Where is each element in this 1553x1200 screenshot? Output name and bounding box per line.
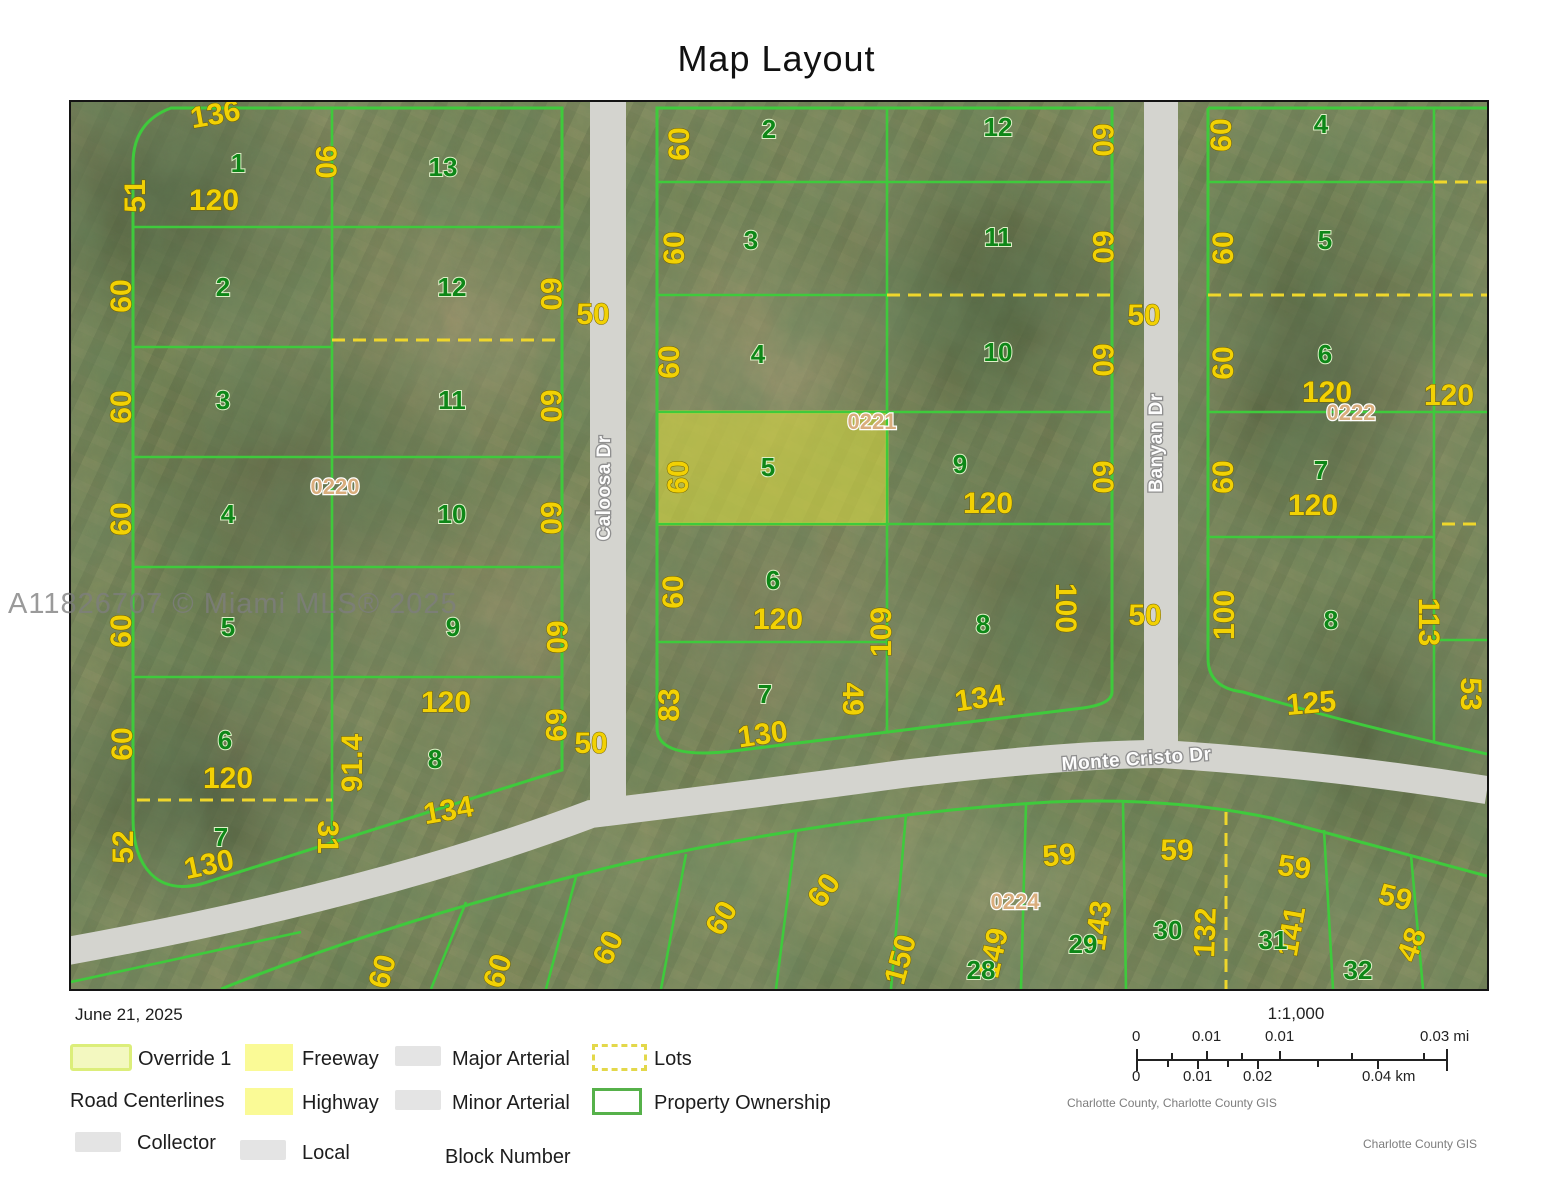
freeway-swatch — [245, 1044, 293, 1071]
dimension-label: 59 — [1041, 838, 1077, 874]
dimension-label: 60 — [1086, 123, 1119, 156]
dimension-label: 83 — [653, 688, 686, 721]
lot-number: 6 — [1318, 339, 1332, 369]
dimension-label: 91.4 — [336, 733, 369, 792]
major-arterial-swatch — [395, 1046, 441, 1066]
dimension-label: 60 — [540, 620, 573, 653]
dimension-label: 60 — [662, 460, 695, 493]
lot-number: 10 — [438, 499, 467, 529]
local-swatch — [240, 1140, 286, 1160]
aerial-texture — [71, 102, 1487, 989]
scale-km-0: 0 — [1132, 1068, 1140, 1085]
lot-number: 8 — [1324, 605, 1338, 635]
dimension-label: 125 — [1285, 685, 1338, 722]
dimension-label: 60 — [105, 279, 138, 312]
collector-swatch — [75, 1132, 121, 1152]
scale-mi-0: 0 — [1132, 1028, 1140, 1045]
legend-override-label: Override 1 — [138, 1048, 231, 1071]
dimension-label: 60 — [653, 345, 686, 378]
map-canvas: 1365112090606060606060606060120521303191… — [69, 100, 1489, 991]
road-width-label: 50 — [1127, 299, 1160, 332]
dimension-label: 60 — [1086, 343, 1119, 376]
dimension-label: 90 — [309, 145, 342, 178]
legend-collector-label: Collector — [137, 1132, 216, 1155]
dimension-label: 53 — [1454, 677, 1487, 710]
dimension-label: 60 — [657, 575, 690, 608]
dimension-label: 60 — [105, 390, 138, 423]
lot-number: 2 — [216, 272, 230, 302]
lot-number: 29 — [1069, 929, 1098, 959]
road-width-label: 50 — [574, 727, 607, 760]
dimension-label: 60 — [1086, 230, 1119, 263]
lot-number: 10 — [984, 337, 1013, 367]
scale-km-2: 0.02 — [1243, 1068, 1272, 1085]
map-date: June 21, 2025 — [75, 1005, 183, 1025]
dimension-label: 100 — [1049, 583, 1082, 633]
dimension-label: 60 — [1207, 460, 1240, 493]
dimension-label: 49 — [836, 682, 869, 715]
lot-number: 3 — [216, 385, 230, 415]
dimension-label: 120 — [753, 603, 803, 636]
lot-number: 8 — [428, 744, 442, 774]
dimension-label: 60 — [663, 127, 696, 160]
scale-mi-3: 0.03 mi — [1420, 1028, 1469, 1045]
lot-number: 9 — [953, 449, 967, 479]
attribution-line: Charlotte County, Charlotte County GIS — [1067, 1096, 1277, 1110]
lot-number: 1 — [231, 148, 245, 178]
dimension-label: 60 — [1086, 460, 1119, 493]
dimension-label: 60 — [106, 727, 139, 760]
dimension-label: 132 — [1188, 907, 1223, 958]
dimension-label: 69 — [539, 708, 572, 741]
dimension-label: 60 — [534, 277, 567, 310]
lot-number: 6 — [766, 565, 780, 595]
block-number: 0221 — [848, 409, 897, 434]
lot-number: 2 — [762, 114, 776, 144]
scale-km-3: 0.04 km — [1362, 1068, 1415, 1085]
lot-number: 3 — [744, 225, 758, 255]
highway-swatch — [245, 1088, 293, 1115]
page-title: Map Layout — [0, 38, 1553, 80]
legend-block-number-label: Block Number — [445, 1146, 571, 1169]
dimension-label: 60 — [1205, 118, 1238, 151]
block-number: 0224 — [991, 889, 1041, 914]
dimension-label: 60 — [534, 501, 567, 534]
attribution-gis: Charlotte County GIS — [1363, 1137, 1477, 1151]
dimension-label: 60 — [534, 389, 567, 422]
legend-local-label: Local — [302, 1142, 350, 1165]
legend-major-arterial-label: Major Arterial — [452, 1048, 570, 1071]
dimension-label: 120 — [421, 686, 471, 719]
legend-freeway-label: Freeway — [302, 1048, 379, 1071]
lot-number: 4 — [1314, 109, 1329, 139]
dimension-label: 120 — [1424, 379, 1474, 412]
block-number: 0220 — [311, 474, 360, 499]
lot-number: 6 — [218, 725, 232, 755]
lots-swatch — [592, 1044, 647, 1071]
lot-number: 30 — [1154, 915, 1183, 945]
lot-number: 4 — [221, 499, 236, 529]
dimension-label: 130 — [736, 715, 790, 755]
lot-number: 12 — [438, 272, 467, 302]
dimension-label: 120 — [963, 487, 1013, 520]
legend-lots-label: Lots — [654, 1048, 692, 1071]
lot-number: 11 — [984, 222, 1012, 252]
dimension-label: 51 — [119, 179, 152, 212]
lot-number: 7 — [758, 679, 772, 709]
lot-number: 8 — [976, 609, 990, 639]
minor-arterial-swatch — [395, 1090, 441, 1110]
lot-number: 13 — [429, 152, 458, 182]
dimension-label: 60 — [1207, 231, 1240, 264]
dimension-label: 120 — [189, 184, 239, 217]
scale-mi-1: 0.01 — [1192, 1028, 1221, 1045]
legend-road-centerlines-label: Road Centerlines — [70, 1090, 225, 1113]
lot-number: 28 — [967, 955, 996, 985]
dimension-label: 59 — [1276, 849, 1314, 886]
mls-watermark: A11826707 © Miami MLS® 2025 — [8, 588, 458, 621]
lot-number: 7 — [214, 822, 228, 852]
dimension-label: 100 — [1208, 590, 1241, 640]
dimension-label: 60 — [1207, 346, 1240, 379]
dimension-label: 52 — [107, 830, 140, 863]
street-name: Caloosa Dr — [594, 435, 615, 540]
street-name: Banyan Dr — [1146, 393, 1167, 493]
scale-mi-2: 0.01 — [1265, 1028, 1294, 1045]
lot-number: 12 — [984, 112, 1013, 142]
legend-property-ownership-label: Property Ownership — [654, 1092, 831, 1115]
dimension-label: 60 — [105, 502, 138, 535]
lot-number: 5 — [761, 452, 775, 482]
dimension-label: 31 — [311, 820, 344, 853]
dimension-label: 134 — [953, 679, 1007, 719]
lot-number: 31 — [1259, 925, 1288, 955]
dimension-label: 59 — [1160, 834, 1193, 867]
scale-ratio: 1:1,000 — [1196, 1004, 1396, 1024]
dimension-label: 120 — [203, 762, 253, 795]
lot-number: 11 — [438, 385, 466, 415]
road-width-label: 50 — [576, 298, 609, 331]
lot-number: 32 — [1344, 955, 1373, 985]
legend-highway-label: Highway — [302, 1092, 379, 1115]
override-swatch — [70, 1044, 132, 1071]
dimension-label: 60 — [658, 231, 691, 264]
lot-number: 4 — [751, 339, 766, 369]
property-ownership-swatch — [592, 1088, 642, 1115]
block-number: 0222 — [1327, 400, 1376, 425]
lot-number: 5 — [1318, 225, 1332, 255]
lot-number: 7 — [1314, 455, 1328, 485]
dimension-label: 113 — [1412, 598, 1445, 646]
legend-minor-arterial-label: Minor Arterial — [452, 1092, 570, 1115]
scale-km-1: 0.01 — [1183, 1068, 1212, 1085]
map-layout-page: Map Layout — [0, 0, 1553, 1200]
map-overlay: 1365112090606060606060606060120521303191… — [71, 102, 1487, 989]
road-width-label: 50 — [1128, 599, 1161, 632]
dimension-label: 120 — [1288, 489, 1338, 522]
dimension-label: 109 — [865, 607, 898, 657]
